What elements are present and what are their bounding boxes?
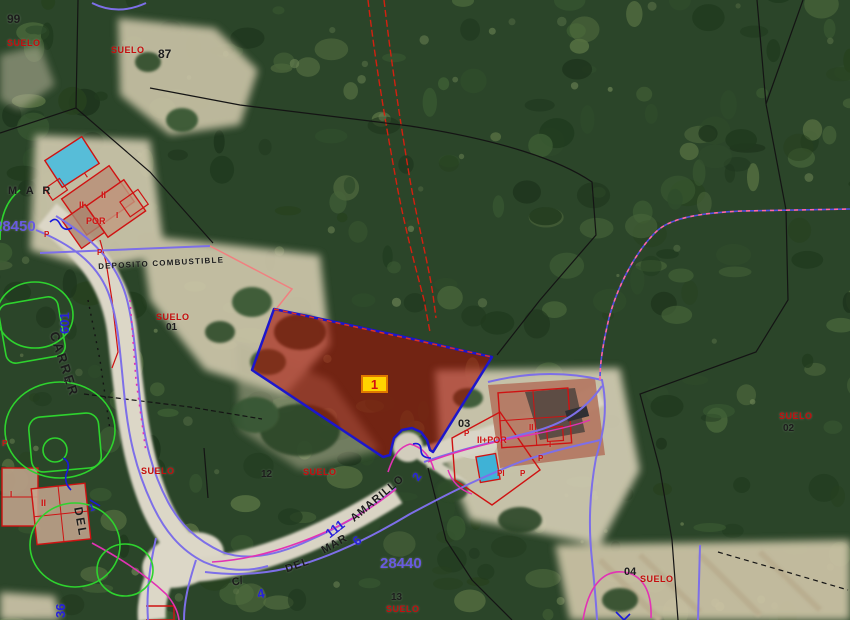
canopy-highlight xyxy=(827,38,834,45)
canopy-blob xyxy=(398,155,413,173)
canopy-blob xyxy=(493,195,504,217)
canopy-blob xyxy=(359,578,381,588)
canopy-blob xyxy=(725,129,757,150)
canopy-highlight xyxy=(418,186,423,191)
canopy-highlight xyxy=(392,298,401,307)
canopy-blob xyxy=(58,87,87,115)
canopy-highlight xyxy=(736,3,741,8)
canopy-highlight xyxy=(680,522,684,526)
canopy-blob xyxy=(740,26,768,38)
canopy-highlight xyxy=(452,77,458,83)
canopy-blob xyxy=(697,192,712,215)
canopy-blob xyxy=(668,269,693,283)
canopy-blob xyxy=(230,27,264,48)
canopy-blob xyxy=(243,453,273,479)
canopy-highlight xyxy=(33,446,39,452)
canopy-blob xyxy=(477,564,494,580)
canopy-blob xyxy=(447,516,466,541)
canopy-highlight xyxy=(557,17,567,27)
canopy-blob xyxy=(490,132,501,141)
canopy-blob xyxy=(550,253,585,279)
canopy-blob xyxy=(352,293,376,307)
canopy-blob xyxy=(432,566,452,574)
canopy-blob xyxy=(315,38,349,60)
canopy-blob xyxy=(543,609,554,620)
canopy-blob xyxy=(36,307,56,329)
canopy-blob xyxy=(692,4,724,31)
canopy-blob xyxy=(25,26,46,35)
canopy-blob xyxy=(698,125,717,142)
canopy-blob xyxy=(296,57,320,77)
canopy-blob xyxy=(437,286,463,310)
canopy-blob xyxy=(720,90,737,119)
canopy-blob xyxy=(703,404,735,418)
canopy-blob xyxy=(210,156,234,184)
canopy-highlight xyxy=(329,27,335,33)
canopy-blob xyxy=(59,594,84,615)
canopy-blob xyxy=(329,191,346,213)
canopy-highlight xyxy=(616,274,619,277)
canopy-blob xyxy=(661,306,692,324)
canopy-highlight xyxy=(408,226,414,232)
canopy-blob xyxy=(348,221,367,243)
canopy-blob xyxy=(580,105,594,134)
canopy-highlight xyxy=(362,61,368,67)
canopy-blob xyxy=(524,309,550,338)
canopy-highlight xyxy=(357,75,366,84)
canopy-blob xyxy=(383,531,415,556)
canopy-blob xyxy=(235,583,266,612)
canopy-blob xyxy=(337,213,348,223)
canopy-blob xyxy=(460,69,486,94)
canopy-blob xyxy=(469,548,480,559)
canopy-blob xyxy=(168,150,188,161)
canopy-blob xyxy=(88,365,102,378)
canopy-highlight xyxy=(673,245,680,252)
canopy-highlight xyxy=(75,369,83,377)
canopy-highlight xyxy=(608,87,613,92)
canopy-highlight xyxy=(154,329,158,333)
canopy-blob xyxy=(315,129,347,144)
canopy-blob xyxy=(580,218,614,239)
canopy-blob xyxy=(791,251,823,269)
canopy-blob xyxy=(680,143,699,160)
canopy-blob xyxy=(273,6,285,14)
canopy-blob xyxy=(822,126,836,145)
canopy-blob xyxy=(645,104,658,124)
canopy-highlight xyxy=(328,226,335,233)
canopy-blob xyxy=(454,590,486,613)
canopy-blob xyxy=(150,382,165,396)
canopy-blob xyxy=(641,256,662,276)
canopy-blob xyxy=(214,130,225,153)
canopy-blob xyxy=(438,77,449,90)
canopy-highlight xyxy=(648,2,657,11)
canopy-highlight xyxy=(478,298,487,307)
canopy-blob xyxy=(433,578,463,590)
canopy-blob xyxy=(461,306,486,327)
canopy-highlight xyxy=(750,399,756,405)
canopy-highlight xyxy=(571,82,578,89)
canopy-blob xyxy=(278,508,303,525)
canopy-blob xyxy=(387,261,401,273)
canopy-blob xyxy=(460,18,480,40)
canopy-highlight xyxy=(10,439,15,444)
canopy-highlight xyxy=(333,581,340,588)
canopy-blob xyxy=(33,392,52,406)
canopy-blob xyxy=(288,589,306,611)
canopy-blob xyxy=(90,488,112,501)
canopy-highlight xyxy=(290,59,299,68)
canopy-blob xyxy=(525,569,560,588)
canopy-blob xyxy=(716,244,751,266)
canopy-blob xyxy=(656,438,667,450)
canopy-highlight xyxy=(509,18,516,25)
canopy-blob xyxy=(682,375,708,385)
canopy-blob xyxy=(593,289,626,314)
canopy-highlight xyxy=(233,588,239,594)
canopy-blob xyxy=(80,566,108,582)
canopy-highlight xyxy=(175,593,183,601)
canopy-blob xyxy=(630,266,644,295)
canopy-blob xyxy=(756,88,768,98)
canopy-blob xyxy=(525,99,555,112)
canopy-blob xyxy=(824,421,843,434)
canopy-blob xyxy=(65,321,77,340)
cadastral-map-viewport[interactable]: 99SUELOSUELO8728450M A R601CARRERDEL36DE… xyxy=(0,0,850,620)
canopy-blob xyxy=(722,524,744,538)
canopy-blob xyxy=(693,523,726,532)
canopy-blob xyxy=(343,82,358,100)
canopy-blob xyxy=(719,267,752,278)
canopy-highlight xyxy=(214,469,219,474)
canopy-blob xyxy=(157,409,178,417)
canopy-blob xyxy=(275,206,301,215)
canopy-blob xyxy=(327,466,363,489)
canopy-highlight xyxy=(712,339,717,344)
canopy-blob xyxy=(636,87,652,102)
canopy-blob xyxy=(259,139,272,155)
canopy-blob xyxy=(189,474,202,493)
canopy-blob xyxy=(668,189,683,210)
canopy-blob xyxy=(626,1,642,27)
canopy-blob xyxy=(231,495,261,512)
canopy-highlight xyxy=(805,173,814,182)
canopy-blob xyxy=(491,536,527,558)
canopy-highlight xyxy=(459,154,464,159)
canopy-blob xyxy=(94,92,108,101)
canopy-blob xyxy=(783,134,813,161)
canopy-blob xyxy=(681,281,698,305)
canopy-blob xyxy=(562,59,592,80)
canopy-highlight xyxy=(557,597,565,605)
canopy-highlight xyxy=(420,35,429,44)
canopy-highlight xyxy=(22,256,30,264)
canopy-blob xyxy=(788,218,811,243)
canopy-blob xyxy=(382,53,406,62)
canopy-blob xyxy=(423,88,437,117)
canopy-blob xyxy=(513,180,541,203)
canopy-blob xyxy=(651,395,684,418)
map-canvas[interactable] xyxy=(0,0,850,620)
canopy-blob xyxy=(830,486,845,508)
canopy-highlight xyxy=(183,416,193,426)
canopy-blob xyxy=(699,145,732,169)
canopy-blob xyxy=(802,354,813,368)
canopy-highlight xyxy=(20,354,24,358)
canopy-blob xyxy=(570,16,600,42)
canopy-blob xyxy=(733,477,750,493)
canopy-blob xyxy=(767,39,781,62)
canopy-blob xyxy=(344,177,355,194)
canopy-blob xyxy=(439,155,459,172)
canopy-blob xyxy=(824,19,836,39)
canopy-highlight xyxy=(489,28,496,35)
canopy-blob xyxy=(529,207,562,225)
parcel-1-badge[interactable]: 1 xyxy=(361,375,388,393)
